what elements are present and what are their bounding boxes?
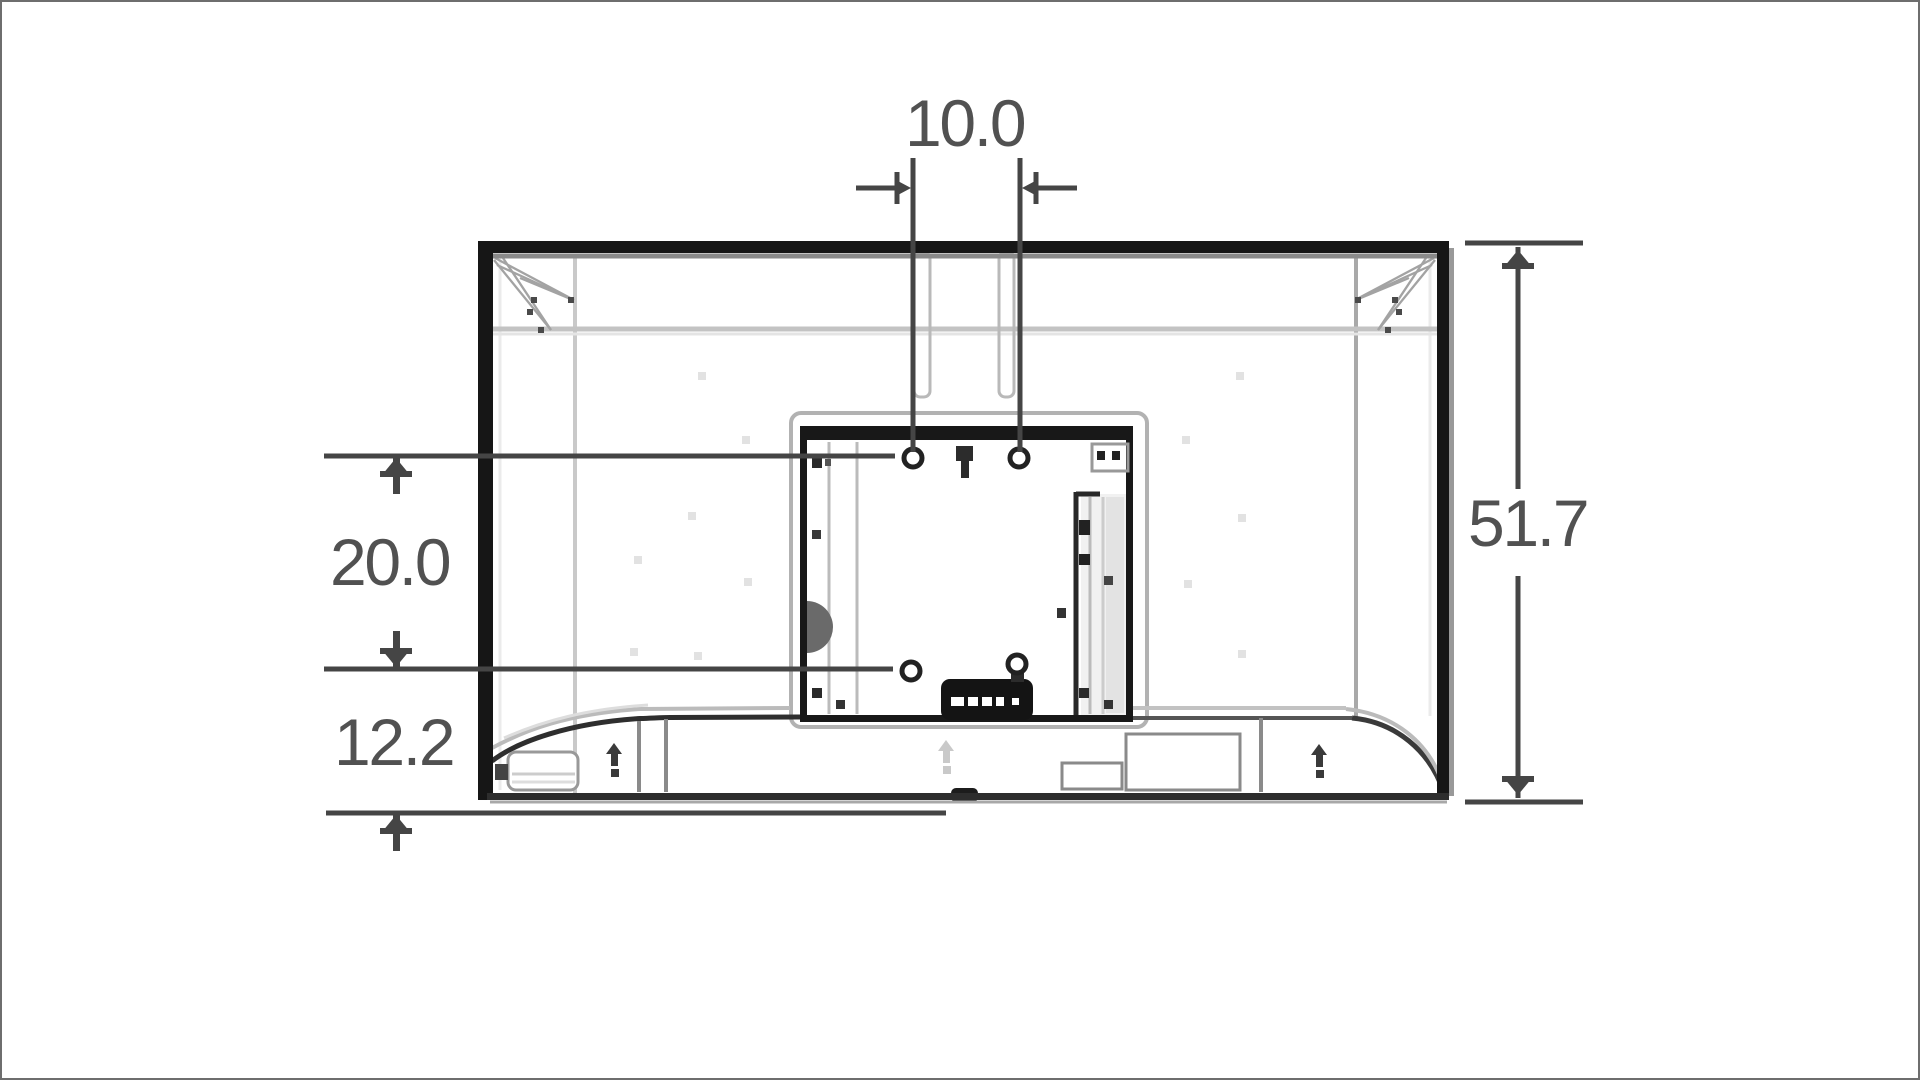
- svg-text:10.0: 10.0: [905, 86, 1025, 160]
- svg-text:20.0: 20.0: [330, 525, 450, 599]
- svg-text:51.7: 51.7: [1468, 486, 1587, 560]
- svg-text:12.2: 12.2: [334, 705, 453, 779]
